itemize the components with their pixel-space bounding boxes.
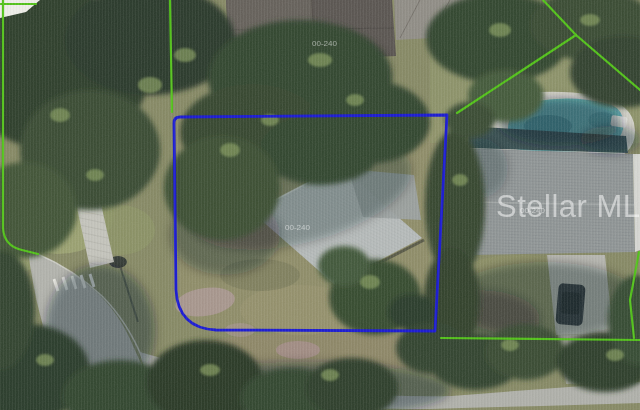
aerial-parcel-photo: 00-240 00-240 00-240 Stellar MLS	[0, 0, 640, 410]
aerial-photo-canvas: 00-240 00-240 00-240 Stellar MLS	[0, 0, 640, 410]
parcel-label-subject: 00-240	[285, 223, 310, 232]
stellar-mls-watermark: Stellar MLS	[496, 189, 640, 224]
parcel-label-north: 00-240	[312, 39, 337, 48]
